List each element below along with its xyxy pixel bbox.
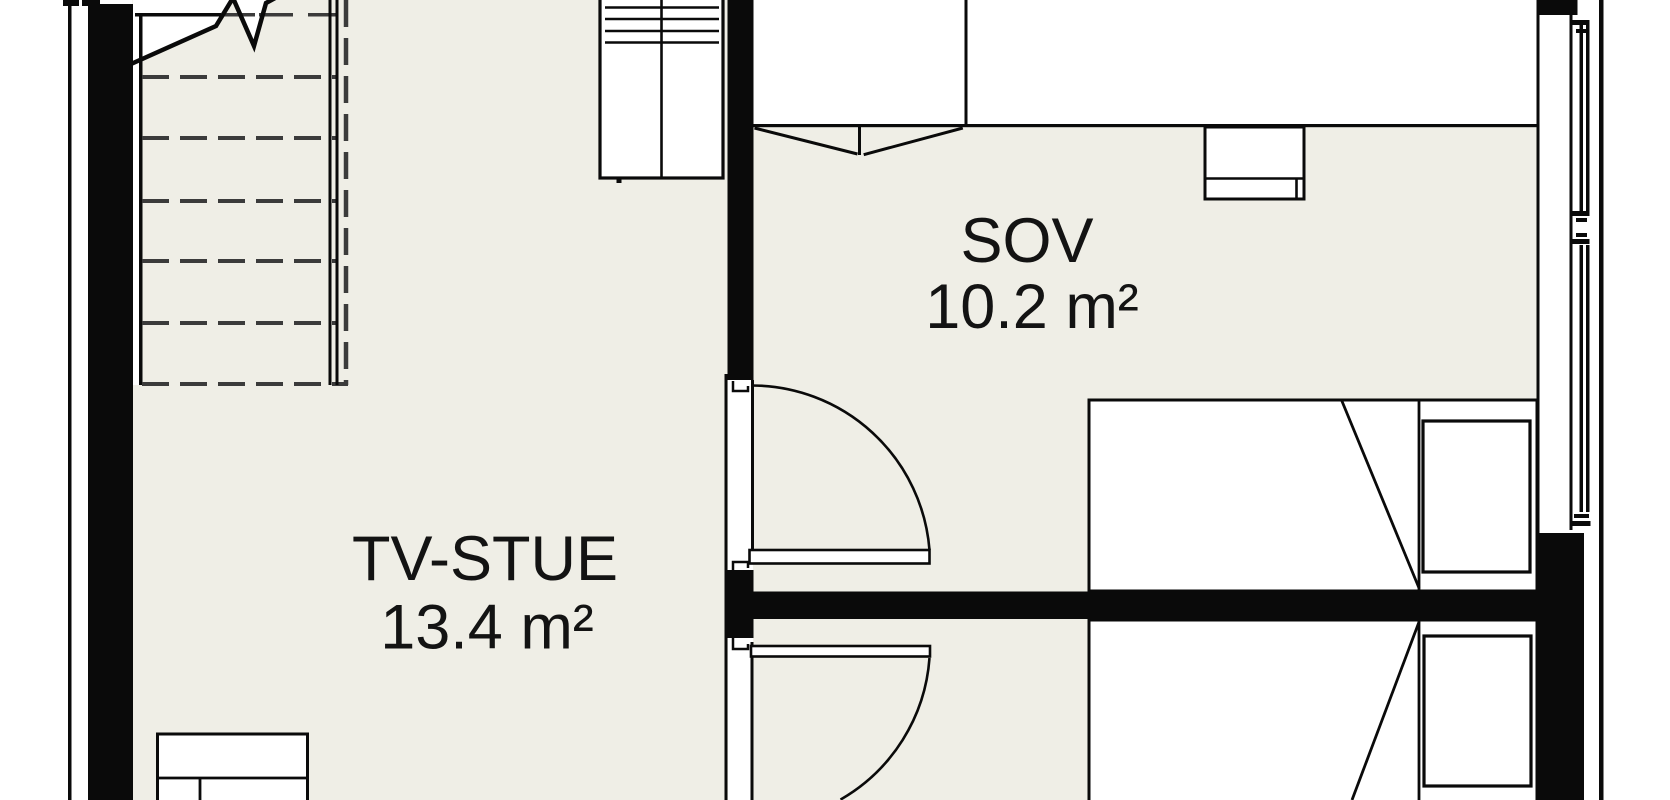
svg-text:13.4 m²: 13.4 m² — [380, 593, 594, 663]
svg-text:SOV: SOV — [960, 206, 1093, 276]
svg-text:10.2 m²: 10.2 m² — [925, 272, 1139, 342]
svg-text:TV-STUE: TV-STUE — [352, 524, 618, 594]
